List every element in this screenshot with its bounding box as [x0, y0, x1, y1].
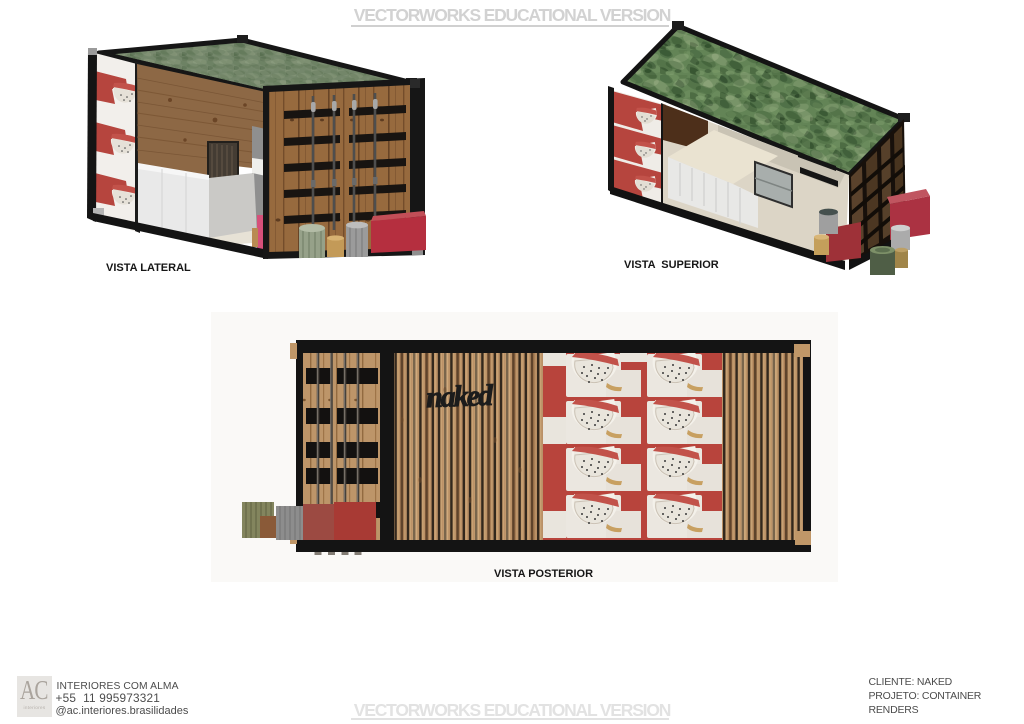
- svg-text:naked: naked: [425, 379, 494, 414]
